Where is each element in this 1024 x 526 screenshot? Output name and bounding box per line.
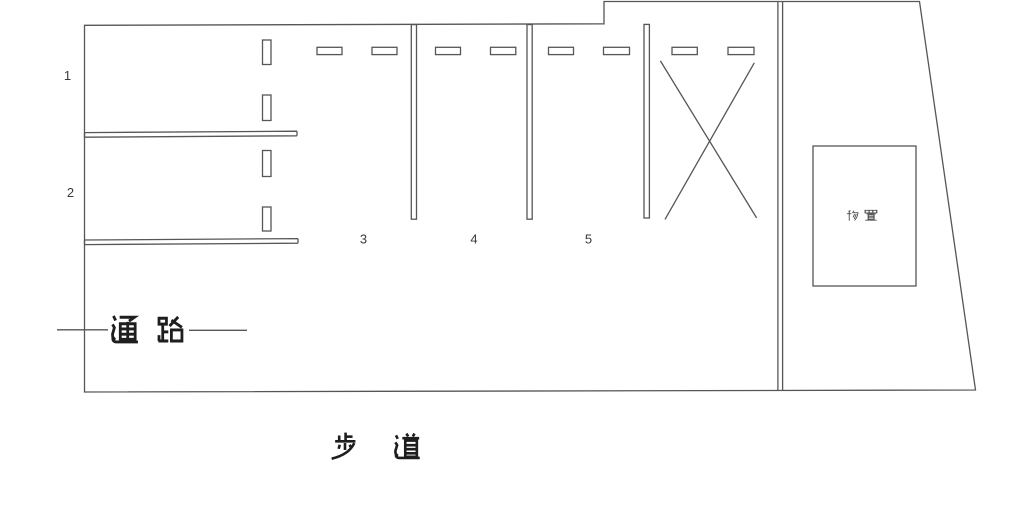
svg-text:5: 5 (585, 232, 592, 247)
svg-text:3: 3 (360, 232, 367, 247)
svg-text:4: 4 (470, 232, 477, 247)
svg-text:1: 1 (64, 68, 71, 83)
svg-text:2: 2 (67, 185, 74, 200)
